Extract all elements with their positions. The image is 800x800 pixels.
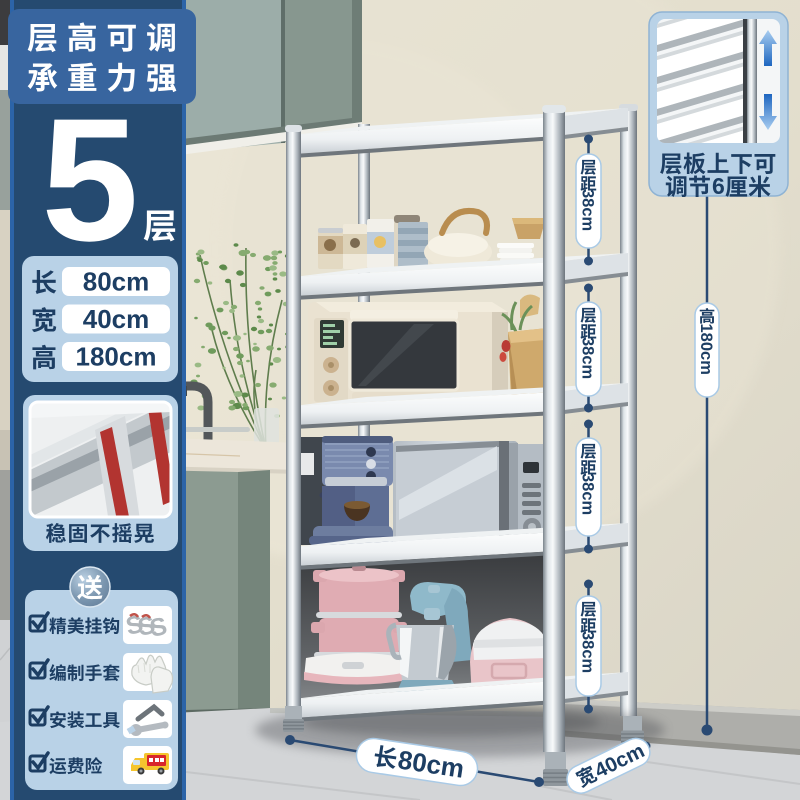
svg-text:40cm: 40cm [83, 304, 150, 334]
svg-text:38cm: 38cm [579, 189, 597, 231]
svg-text:180cm: 180cm [76, 342, 157, 372]
svg-text:38cm: 38cm [579, 473, 597, 515]
svg-text:6: 6 [712, 173, 725, 199]
svg-text:80cm: 80cm [83, 267, 150, 297]
svg-text:180cm: 180cm [697, 324, 715, 375]
svg-text:5: 5 [41, 83, 138, 278]
svg-text:38cm: 38cm [579, 337, 597, 379]
svg-text:38cm: 38cm [579, 631, 597, 673]
